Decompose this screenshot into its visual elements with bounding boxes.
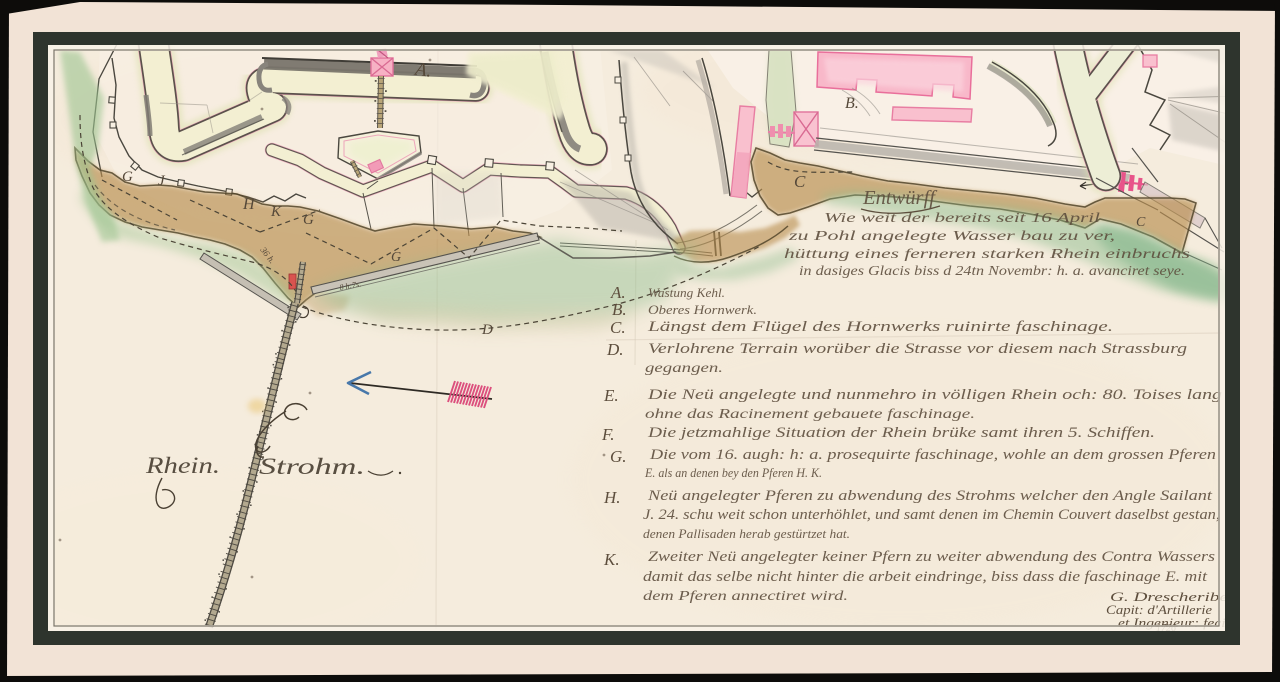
svg-text:F.: F. xyxy=(601,425,614,444)
svg-text:H.: H. xyxy=(603,488,621,507)
svg-text:K: K xyxy=(270,204,282,220)
svg-text:Die vom 16. augh: h: a. proseq: Die vom 16. augh: h: a. prosequirte fasc… xyxy=(649,447,1216,463)
svg-text:J. 24. schu weit schon unterhö: J. 24. schu weit schon unterhöhlet, und … xyxy=(643,507,1220,523)
svg-text:G. Drescheribe: G. Drescheribe xyxy=(1110,590,1229,604)
svg-text:Oberes Hornwerk.: Oberes Hornwerk. xyxy=(648,302,757,317)
svg-text:ohne das Racinement gebauete f: ohne das Racinement gebauete faschinage. xyxy=(645,406,975,421)
svg-text:Die Neü angelegte und nunmehro: Die Neü angelegte und nunmehro in völlig… xyxy=(647,387,1222,403)
svg-text:C: C xyxy=(1136,215,1146,230)
svg-text:G: G xyxy=(122,169,133,185)
svg-text:Capit: d'Artillerie: Capit: d'Artillerie xyxy=(1106,603,1213,617)
svg-text:Strohm.: Strohm. xyxy=(259,454,365,479)
svg-text:B.: B. xyxy=(845,95,859,112)
svg-text:E. als an denen bey den Pferen: E. als an denen bey den Pferen H. K. xyxy=(644,466,822,480)
svg-text:C.: C. xyxy=(610,318,626,337)
svg-text:H: H xyxy=(242,196,256,213)
svg-text:Verlohrene Terrain worüber die: Verlohrene Terrain worüber die Strasse v… xyxy=(648,341,1187,357)
svg-text:gegangen.: gegangen. xyxy=(645,360,723,375)
svg-text:in dasiges Glacis biss d 24tn: in dasiges Glacis biss d 24tn Novembr: h… xyxy=(799,264,1185,279)
svg-text:zu Pohl angelegte Wasser bau z: zu Pohl angelegte Wasser bau zu ver, xyxy=(787,229,1115,244)
svg-text:Wastung Kehl.: Wastung Kehl. xyxy=(648,285,725,300)
svg-text:Wie weit der bereits seit 16 A: Wie weit der bereits seit 16 April xyxy=(824,211,1100,226)
svg-text:B.: B. xyxy=(612,300,627,319)
svg-text:E.: E. xyxy=(603,386,619,405)
svg-text:damit das selbe nicht hinter d: damit das selbe nicht hinter die arbeit … xyxy=(643,569,1208,585)
svg-text:Längst dem Flügel des Hornwerk: Längst dem Flügel des Hornwerks ruinirte… xyxy=(647,319,1113,335)
svg-text:Entwürff: Entwürff xyxy=(862,187,938,209)
svg-text:Rhein.: Rhein. xyxy=(145,453,220,478)
svg-text:C: C xyxy=(794,172,806,191)
svg-text:Die jetzmahlige Situation der: Die jetzmahlige Situation der Rhein brük… xyxy=(647,425,1155,441)
svg-text:hüttung eines ferneren starken: hüttung eines ferneren starken Rhein ein… xyxy=(784,247,1191,262)
svg-text:Zweiter Neü angelegter keiner: Zweiter Neü angelegter keiner Pfern zu w… xyxy=(648,549,1216,565)
svg-text:dem Pferen annectiret wird.: dem Pferen annectiret wird. xyxy=(643,588,848,603)
svg-text:D: D xyxy=(481,322,493,338)
svg-text:K.: K. xyxy=(603,550,620,569)
svg-text:G.: G. xyxy=(610,447,627,466)
svg-text:D.: D. xyxy=(606,340,624,359)
svg-text:Neü angelegter Pferen zu abwen: Neü angelegter Pferen zu abwendung des S… xyxy=(647,488,1214,504)
svg-text:G: G xyxy=(391,250,401,265)
svg-text:denen Pallisaden herab gestürt: denen Pallisaden herab gestürtzet hat. xyxy=(643,526,850,541)
svg-text:G: G xyxy=(303,212,314,228)
